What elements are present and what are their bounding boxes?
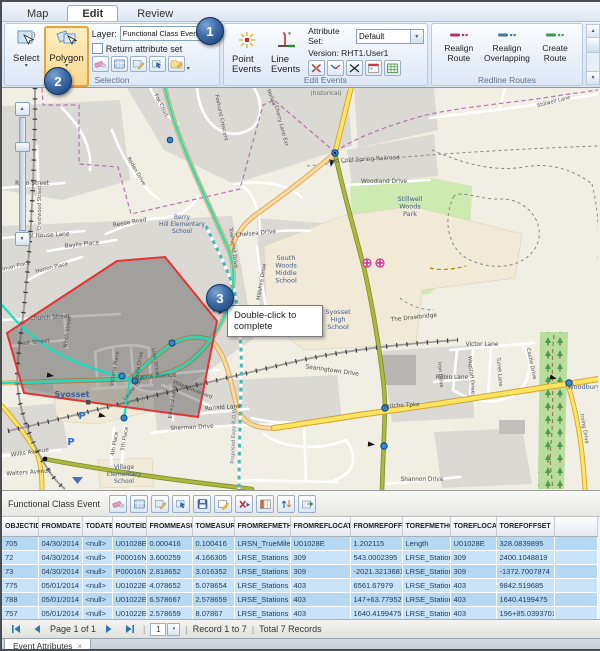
- drawing-tooltip: Double-click to complete: [227, 305, 323, 337]
- layer-label: Layer:: [92, 29, 117, 39]
- table-cell[interactable]: 403: [290, 593, 350, 607]
- table-cell[interactable]: <null>: [82, 607, 112, 620]
- chevron-down-icon[interactable]: ▾: [410, 30, 423, 43]
- table-cell[interactable]: 1640.4199475: [350, 607, 402, 620]
- zoom-out-button[interactable]: ▼: [15, 232, 30, 246]
- column-header[interactable]: FROMREFMETHOD: [234, 517, 290, 537]
- eraser-icon[interactable]: [92, 56, 109, 72]
- callout-3: 3: [206, 284, 234, 312]
- version-label: Version: RHT1.User1: [308, 48, 424, 58]
- column-header[interactable]: TOREFLOCATION: [450, 517, 496, 537]
- redline-dash-crimson-icon: [449, 29, 469, 43]
- application-window: Map Edit Review Select ▾ Polygon: [0, 0, 600, 651]
- table-row[interactable]: 7304/30/2014<null>P00016N2.8186523.01635…: [2, 565, 598, 579]
- table-cell[interactable]: 3.016352: [192, 565, 234, 579]
- table-cell[interactable]: 9842.519685: [496, 579, 554, 593]
- table-cell[interactable]: 05/01/2014: [38, 593, 82, 607]
- table-cell[interactable]: <null>: [82, 579, 112, 593]
- table-cell[interactable]: U01022E: [112, 593, 146, 607]
- black-x-arrows-icon[interactable]: [346, 60, 363, 76]
- map-view[interactable]: Ryan StreetCrestwood StreetSchool House …: [2, 88, 600, 490]
- table-cell[interactable]: LRSE_Stations: [234, 579, 290, 593]
- table-cell[interactable]: 73: [2, 565, 38, 579]
- chevron-down-icon[interactable]: ▾: [167, 623, 180, 636]
- ribbon-tab-row: Map Edit Review: [2, 2, 600, 22]
- selection-group-label: Selection: [5, 75, 219, 85]
- table-header-row: OBJECTIDFROMDATETODATEROUTEIDFROMMEASURE…: [2, 517, 598, 537]
- table-cell[interactable]: 6561.67979: [350, 579, 402, 593]
- tab-event-attributes[interactable]: Event Attributes ×: [4, 639, 91, 651]
- separator: |: [185, 624, 187, 634]
- table-cell[interactable]: LRSN_TrueMile: [234, 537, 290, 551]
- medical-cross-icon: [376, 259, 384, 267]
- page-number-input[interactable]: 1 ▾: [150, 623, 180, 636]
- table-row[interactable]: 7204/30/2014<null>P00016N3.6002594.16630…: [2, 551, 598, 565]
- callout-2: 2: [44, 67, 72, 95]
- table-cell[interactable]: 757: [2, 607, 38, 620]
- point-events-label: Point Events: [232, 55, 261, 75]
- scrollbar-track[interactable]: [587, 53, 599, 71]
- prev-page-button[interactable]: [29, 622, 45, 637]
- return-attribute-set-checkbox[interactable]: [92, 43, 103, 54]
- sort-arrows-icon[interactable]: [277, 495, 295, 513]
- zoom-slider-track[interactable]: [19, 117, 26, 231]
- railway-station-icon: [86, 400, 91, 405]
- column-header[interactable]: OBJECTID: [2, 517, 38, 537]
- map-label: Syosset: [54, 390, 89, 399]
- redline-routes-group: Realign Route Realign Overlapping Create…: [431, 23, 583, 86]
- column-header[interactable]: FROMREFLOCATION: [290, 517, 350, 537]
- green-grid-icon[interactable]: [384, 60, 401, 76]
- table-cell[interactable]: LRSE_Stations: [234, 565, 290, 579]
- table-cell[interactable]: LRSE_Stations: [402, 593, 450, 607]
- column-header[interactable]: TOMEASURE: [192, 517, 234, 537]
- magnifier-pencil-icon[interactable]: [130, 56, 147, 72]
- column-header[interactable]: TOREFMETHOD: [402, 517, 450, 537]
- table-cell[interactable]: 196+85.0393701: [496, 607, 554, 620]
- table-cell[interactable]: -1372.7007874: [496, 565, 554, 579]
- table-cell[interactable]: U01022E: [112, 579, 146, 593]
- map-label: SouthWoodsMiddleSchool: [275, 254, 297, 285]
- table-cell[interactable]: 543.0002395: [350, 551, 402, 565]
- tab-map[interactable]: Map: [12, 5, 63, 21]
- scroll-up-icon[interactable]: ▲: [587, 25, 599, 38]
- table-cell[interactable]: 309: [290, 565, 350, 579]
- table-icon[interactable]: [111, 56, 128, 72]
- attribute-set-select[interactable]: Default ▾: [356, 29, 424, 44]
- table-cell[interactable]: LRSE_Stations: [402, 579, 450, 593]
- table-row[interactable]: 77505/01/2014<null>U01022E4.0786525.0786…: [2, 579, 598, 593]
- event-attribute-table[interactable]: OBJECTIDFROMDATETODATEROUTEIDFROMMEASURE…: [2, 517, 600, 619]
- table-cell[interactable]: 2.578659: [192, 593, 234, 607]
- bottom-tab-bar: Event Attributes ×: [2, 638, 600, 651]
- zoom-slider[interactable]: ▲ ▼: [14, 102, 30, 246]
- table-cell[interactable]: 2.578659: [146, 607, 192, 620]
- map-label: Shannon Drive: [401, 477, 444, 483]
- redline-dash-green-icon: [545, 29, 565, 43]
- table-cell[interactable]: 5.078654: [192, 579, 234, 593]
- line-events-label: Line Events: [271, 55, 300, 75]
- redline-routes-group-label: Redline Routes: [432, 75, 582, 85]
- table-cell[interactable]: <null>: [82, 537, 112, 551]
- record-total: Total 7 Records: [259, 624, 322, 634]
- table-cell[interactable]: 8.07867: [192, 607, 234, 620]
- column-header[interactable]: FROMMEASURE: [146, 517, 192, 537]
- point-events-icon: [235, 29, 259, 54]
- ribbon-scrollbar[interactable]: ▲ ▼: [586, 24, 600, 85]
- table-cell[interactable]: -2021.3213681: [350, 565, 402, 579]
- scroll-down-icon[interactable]: ▼: [587, 71, 599, 84]
- red-x-icon[interactable]: [308, 60, 325, 76]
- table-red-header-icon[interactable]: [365, 60, 382, 76]
- floppy-disk-icon[interactable]: [193, 495, 211, 513]
- folder-pencil-icon[interactable]: [168, 56, 185, 72]
- map-label: Victor Lane: [466, 342, 499, 348]
- tab-edit[interactable]: Edit: [67, 5, 118, 21]
- ribbon: Select ▾ Polygon ▾ Layer: Functional Cla…: [2, 22, 600, 88]
- table-cell[interactable]: LRSE_Stations: [234, 593, 290, 607]
- redline-dash-blue-icon: [497, 29, 517, 43]
- table-cell[interactable]: <null>: [82, 565, 112, 579]
- table-cell[interactable]: LRSE_Stations: [234, 551, 290, 565]
- table-pager: Page 1 of 1 | 1 ▾ | Record 1 to 7 | Tota…: [2, 619, 600, 638]
- table-cell[interactable]: 6.578667: [146, 593, 192, 607]
- table-cell[interactable]: 3.600259: [146, 551, 192, 565]
- table-cell[interactable]: 403: [450, 607, 496, 620]
- map-label: P: [67, 437, 74, 448]
- table-cell[interactable]: 05/01/2014: [38, 579, 82, 593]
- table-cell[interactable]: P00016N: [112, 551, 146, 565]
- table-pencil-icon[interactable]: [214, 495, 232, 513]
- table-cell[interactable]: 705: [2, 537, 38, 551]
- separator: |: [143, 624, 145, 634]
- table-cell[interactable]: 04/30/2014: [38, 551, 82, 565]
- table-cell[interactable]: 04/30/2014: [38, 537, 82, 551]
- last-page-button[interactable]: [122, 622, 138, 637]
- event-attributes-tab-label: Event Attributes: [13, 641, 73, 651]
- tab-review[interactable]: Review: [122, 5, 188, 21]
- chevron-down-icon[interactable]: ▾: [187, 67, 190, 72]
- callout-1: 1: [196, 17, 224, 45]
- column-header[interactable]: TOREFOFFSET: [496, 517, 554, 537]
- table-cell[interactable]: 4.078652: [146, 579, 192, 593]
- table-cell[interactable]: U01028E: [290, 537, 350, 551]
- edit-events-group-label: Edit Events: [224, 75, 427, 85]
- selection-group: Select ▾ Polygon ▾ Layer: Functional Cla…: [4, 23, 220, 86]
- table-cell[interactable]: 147+63.7795276: [350, 593, 402, 607]
- table-cell[interactable]: 72: [2, 551, 38, 565]
- magnifier-arrow-icon[interactable]: [172, 495, 190, 513]
- map-label: P: [78, 411, 85, 422]
- table-row[interactable]: 75705/01/2014<null>U01022E2.5786598.0786…: [2, 607, 598, 620]
- table-cell[interactable]: 0.000416: [146, 537, 192, 551]
- create-route-label: Create Route: [542, 43, 568, 63]
- table-cell[interactable]: 788: [2, 593, 38, 607]
- table-icon[interactable]: [130, 495, 148, 513]
- table-cell[interactable]: 775: [2, 579, 38, 593]
- table-cell[interactable]: 2.818652: [146, 565, 192, 579]
- scrollbar-thumb[interactable]: [587, 38, 599, 53]
- table-cell[interactable]: LRSE_Stations: [234, 607, 290, 620]
- table-cell[interactable]: 04/30/2014: [38, 565, 82, 579]
- record-range: Record 1 to 7: [193, 624, 247, 634]
- magnifier-arrow-icon[interactable]: [149, 56, 166, 72]
- table-cell[interactable]: <null>: [82, 551, 112, 565]
- next-page-button[interactable]: [101, 622, 117, 637]
- map-canvas[interactable]: Ryan StreetCrestwood StreetSchool House …: [2, 88, 598, 490]
- map-label: Woodbury: [568, 383, 598, 391]
- column-header[interactable]: FROMREFOFFSET: [350, 517, 402, 537]
- zoom-slider-handle[interactable]: [15, 142, 30, 152]
- event-table-header: Functional Class Event: [2, 490, 600, 517]
- eraser-icon[interactable]: [109, 495, 127, 513]
- attribute-set-label: Attribute Set:: [308, 26, 353, 46]
- table-cell[interactable]: 328.0839895: [496, 537, 554, 551]
- table-cell[interactable]: 0.100416: [192, 537, 234, 551]
- table-cell[interactable]: 309: [450, 565, 496, 579]
- table-cell[interactable]: LRSE_Stations: [402, 565, 450, 579]
- layer-value: Functional Class Event: [121, 29, 204, 38]
- page-info: Page 1 of 1: [50, 624, 96, 634]
- map-label: Crestwood Street: [37, 186, 43, 231]
- table-cell[interactable]: LRSE_Stations: [402, 607, 450, 620]
- table-cell[interactable]: 05/01/2014: [38, 607, 82, 620]
- table-cell[interactable]: LRSE_Stations: [402, 551, 450, 565]
- page-number-value[interactable]: 1: [150, 623, 166, 636]
- polygon-select-icon: [55, 29, 79, 52]
- table-cell[interactable]: 1.202115: [350, 537, 402, 551]
- table-cell[interactable]: <null>: [82, 593, 112, 607]
- return-attribute-set-label: Return attribute set: [106, 44, 183, 54]
- red-x-arrow-icon[interactable]: [235, 495, 253, 513]
- table-cell[interactable]: 403: [290, 579, 350, 593]
- column-header[interactable]: TODATE: [82, 517, 112, 537]
- merge-arrows-icon[interactable]: [327, 60, 344, 76]
- table-cell[interactable]: Length: [402, 537, 450, 551]
- select-icon: [14, 29, 38, 52]
- zoom-in-button[interactable]: ▲: [15, 102, 30, 116]
- table-cell[interactable]: 2400.1048819: [496, 551, 554, 565]
- table-cell[interactable]: U01028E: [450, 537, 496, 551]
- table-cell[interactable]: P00016N: [112, 565, 146, 579]
- close-icon[interactable]: ×: [78, 642, 83, 651]
- event-layer-title: Functional Class Event: [8, 499, 100, 509]
- table-cell[interactable]: U01028E: [112, 537, 146, 551]
- table-cell[interactable]: 1640.4199475: [496, 593, 554, 607]
- table-columns-icon[interactable]: [256, 495, 274, 513]
- table-cell[interactable]: 309: [450, 551, 496, 565]
- map-label: Woodland Drive: [361, 179, 407, 185]
- realign-overlapping-label: Realign Overlapping: [484, 43, 530, 63]
- attribute-set-value: Default: [357, 32, 410, 41]
- column-header[interactable]: FROMDATE: [38, 517, 82, 537]
- chevron-down-icon[interactable]: ▾: [25, 64, 28, 69]
- line-events-icon: [274, 29, 298, 54]
- edit-events-group: Point Events Line Events Attribute Set: …: [223, 23, 428, 86]
- table-row[interactable]: 70504/30/2014<null>U01028E0.0004160.1004…: [2, 537, 598, 551]
- column-header[interactable]: ROUTEID: [112, 517, 146, 537]
- medical-cross-icon: [363, 259, 371, 267]
- table-cell[interactable]: 403: [450, 579, 496, 593]
- window-arrow-icon[interactable]: [298, 495, 316, 513]
- realign-route-label: Realign Route: [444, 43, 473, 63]
- magnifier-pencil-icon[interactable]: [151, 495, 169, 513]
- table-cell[interactable]: U01022E: [112, 607, 146, 620]
- first-page-button[interactable]: [8, 622, 24, 637]
- table-cell[interactable]: 403: [450, 593, 496, 607]
- table-cell[interactable]: 403: [290, 607, 350, 620]
- table-cell[interactable]: 309: [290, 551, 350, 565]
- separator: |: [252, 624, 254, 634]
- map-label: (historical): [311, 91, 342, 97]
- table-row[interactable]: 78805/01/2014<null>U01022E6.5786672.5786…: [2, 593, 598, 607]
- table-cell[interactable]: 4.166305: [192, 551, 234, 565]
